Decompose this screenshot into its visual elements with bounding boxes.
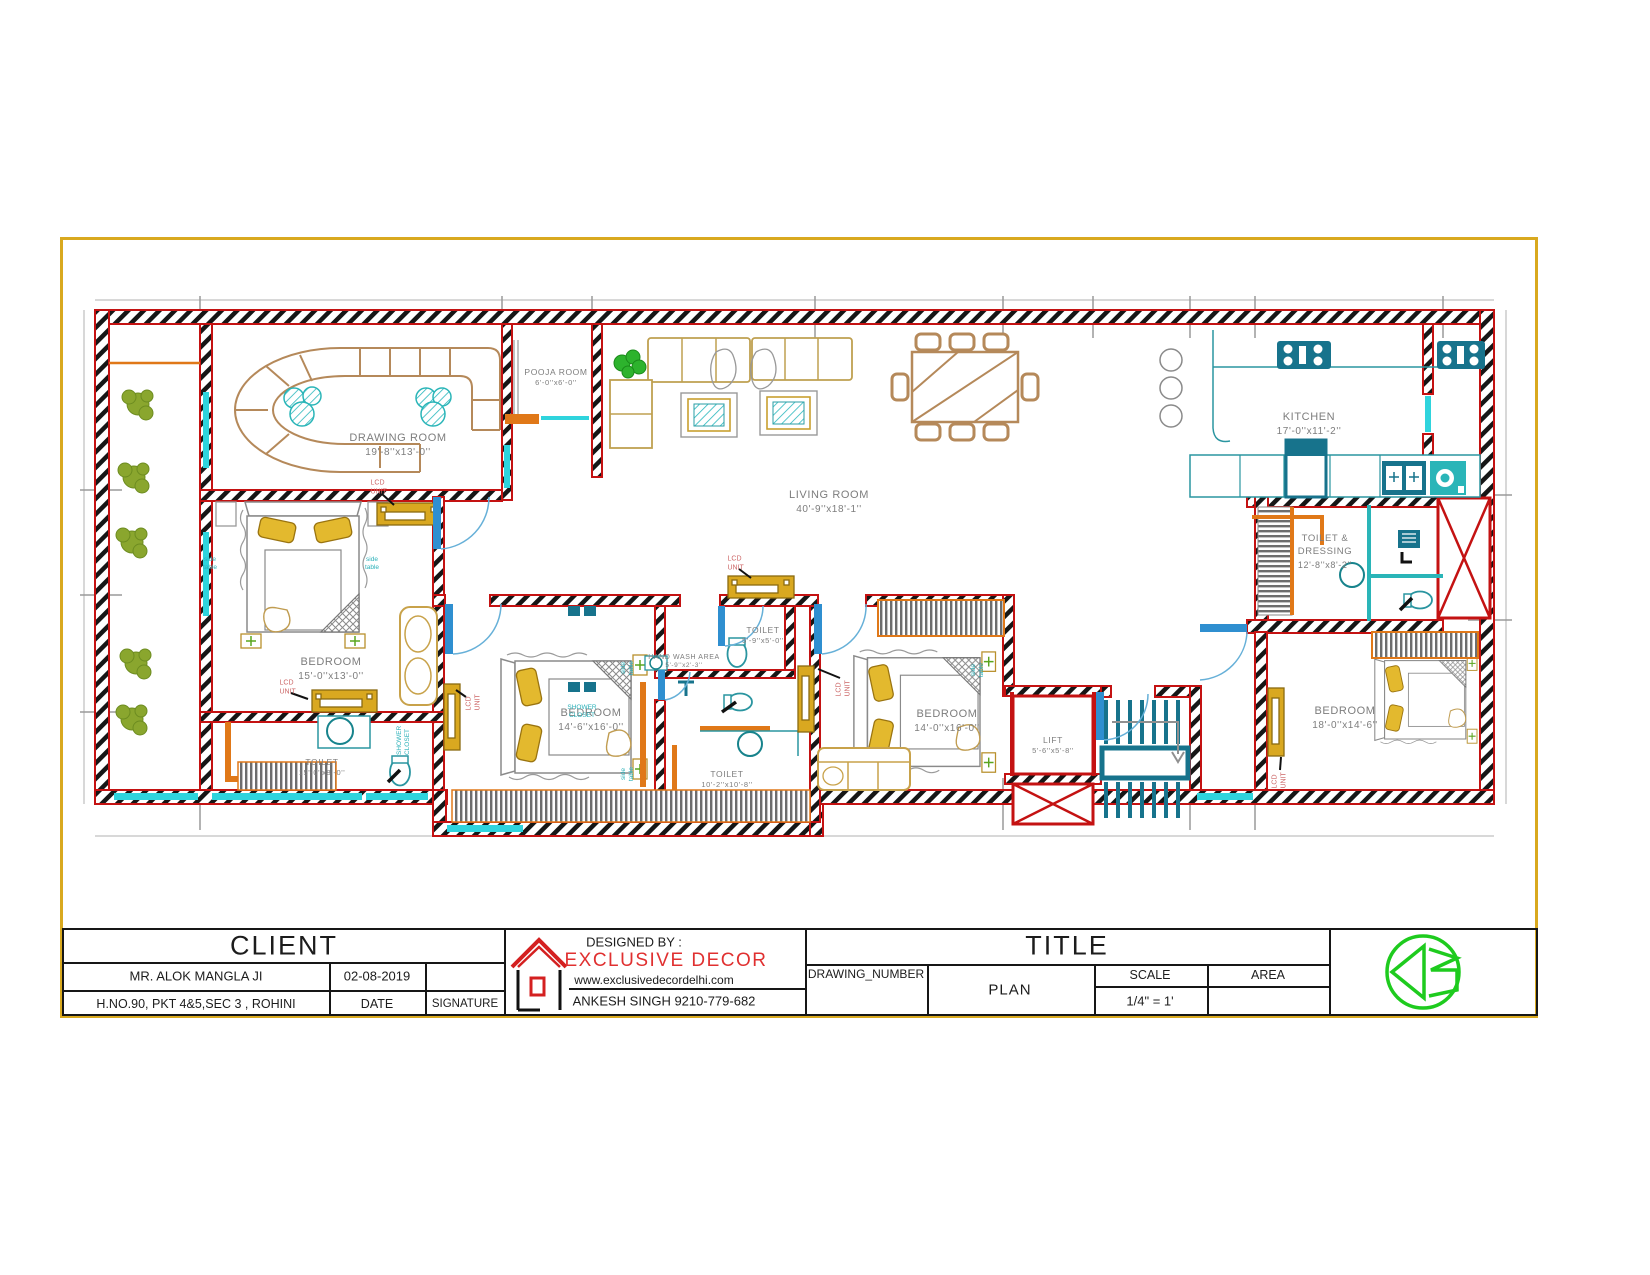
scale-label: SCALE [1130, 968, 1171, 982]
washing-machine [1430, 461, 1466, 495]
designer-company: EXCLUSIVE DECOR [564, 950, 767, 972]
lcd-unit-label: LCD UNIT [465, 694, 483, 711]
sink [1382, 461, 1426, 495]
room-label-lift: LIFT5'-6''x5'-8'' [1032, 735, 1074, 757]
divider [504, 930, 506, 1014]
client-date: 02-08-2019 [344, 969, 411, 984]
divider [805, 930, 807, 1014]
lift-shaft [1010, 692, 1096, 776]
client-address: H.NO.90, PKT 4&5,SEC 3 , ROHINI [96, 997, 295, 1011]
bed [241, 502, 368, 648]
designed-by-heading: DESIGNED BY : [586, 935, 682, 950]
room-label-drawing-room: DRAWING ROOM19'-8''x13'-0'' [349, 431, 446, 459]
designer-website: www.exclusivedecordelhi.com [574, 973, 733, 987]
area-label: AREA [1251, 968, 1285, 982]
title-header: TITLE [1025, 931, 1109, 962]
plan-label: PLAN [988, 982, 1031, 999]
shower-closet-label: SHOWER CLOSET [566, 704, 598, 720]
company-logo [1380, 930, 1470, 1015]
signature-label: SIGNATURE [432, 998, 498, 1010]
side-table-label: side table [620, 763, 636, 785]
toilet1-fittings [225, 716, 410, 790]
room-label-bedroom-4: BEDROOM18'-0''x14'-6'' [1312, 704, 1377, 732]
room-label-kitchen: KITCHEN17'-0''x11'-2'' [1277, 410, 1342, 438]
room-label-living-room: LIVING ROOM40'-9''x18'-1'' [789, 488, 869, 516]
lcd-unit-label: LCD UNIT [835, 680, 853, 697]
dining-set [892, 334, 1038, 440]
lcd-unit-label: LCD UNIT [280, 679, 297, 697]
lcd-unit-label: LCD UNIT [1271, 772, 1289, 789]
living-room-furniture [610, 338, 852, 448]
stove [1437, 341, 1485, 369]
scale-value: 1/4" = 1' [1126, 994, 1173, 1009]
room-label-hand-wash: HAND WASH AREA5'-9''x2'-3'' [648, 653, 720, 671]
designer-contact: ANKESH SINGH 9210-779-682 [573, 994, 756, 1009]
date-label: DATE [361, 997, 393, 1011]
drawing-number-label: DRAWING_NUMBER [808, 967, 924, 981]
side-table-label: side table [970, 659, 986, 681]
wardrobe [452, 790, 810, 822]
lcd-units [312, 503, 1284, 756]
lcd-unit-label: LCD UNIT [728, 555, 745, 573]
room-label-bedroom-3: BEDROOM14'-0''x16'-0'' [914, 707, 979, 735]
balcony-plants [116, 390, 153, 735]
divider [1329, 930, 1331, 1014]
center-tables [681, 391, 817, 437]
room-label-toilet-small: TOILET5'-9''x5'-0'' [742, 625, 784, 647]
bed [1375, 655, 1477, 744]
room-label-pooja-room: POOJA ROOM6'-0''x6'-0'' [524, 367, 587, 389]
title-block: CLIENT MR. ALOK MANGLA JI 02-08-2019 H.N… [62, 928, 1538, 1016]
shower-closet-label: SHOWER CLOSET [396, 733, 412, 755]
floor-plan-drawing [0, 0, 1650, 1275]
room-label-toilet-dressing: TOILET & DRESSING12'-8''x8'-2'' [1289, 533, 1361, 571]
client-header: CLIENT [230, 931, 338, 962]
side-table-label: side table [361, 556, 383, 572]
drawing-sheet: DRAWING ROOM19'-8''x13'-0'' POOJA ROOM6'… [0, 0, 1650, 1275]
room-label-toilet-2: TOILET10'-2''x10'-8'' [701, 769, 752, 791]
designer-house-icon [510, 934, 568, 1014]
room-label-bedroom-1: BEDROOM15'-0''x13'-0'' [298, 655, 363, 683]
drawing-room-plants [284, 387, 451, 426]
side-table-label: side table [620, 657, 636, 679]
room-label-toilet-1: TOILET15'-0''x8'-0'' [299, 757, 346, 779]
wardrobe [1372, 632, 1478, 658]
stove [1277, 341, 1331, 369]
plant [614, 350, 646, 378]
lcd-unit-label: LCD UNIT [371, 479, 388, 497]
side-table-label: side table [199, 556, 221, 572]
client-name: MR. ALOK MANGLA JI [130, 969, 263, 984]
